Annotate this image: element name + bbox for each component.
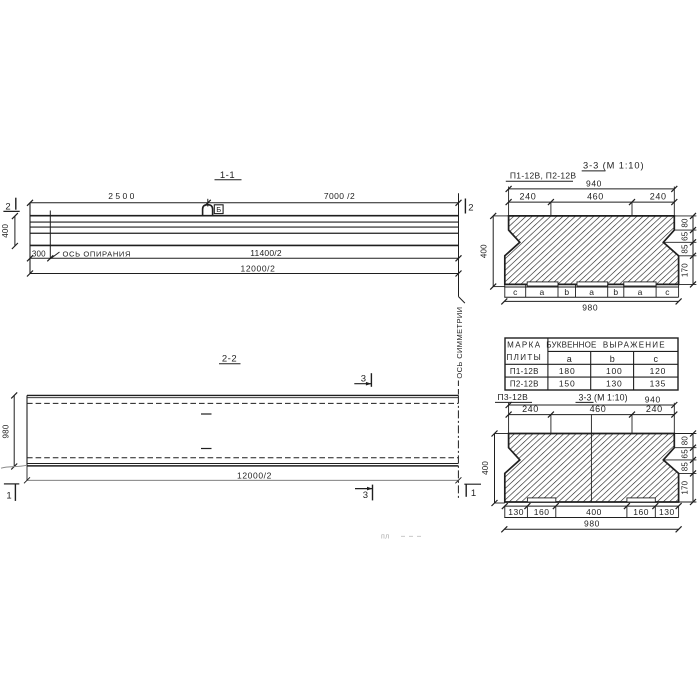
svg-text:12000/2: 12000/2 [241,264,276,274]
svg-text:150: 150 [559,379,576,389]
svg-text:а: а [540,287,545,297]
svg-text:b: b [613,287,618,297]
svg-text:1: 1 [6,491,11,502]
svg-text:ВЫРАЖЕНИЕ: ВЫРАЖЕНИЕ [603,341,666,350]
svg-text:130: 130 [508,507,524,517]
svg-text:а: а [589,287,594,297]
svg-text:170: 170 [680,480,689,494]
svg-text:7000 /2: 7000 /2 [324,191,355,201]
svg-text:МАРКА: МАРКА [507,340,541,349]
svg-text:b: b [564,287,569,297]
svg-text:2: 2 [5,201,10,212]
svg-text:П1-12В: П1-12В [510,367,539,376]
svg-text:1: 1 [471,488,476,499]
svg-text:пл: пл [381,534,389,541]
svg-text:240: 240 [646,404,663,414]
svg-text:300: 300 [32,250,46,259]
svg-text:3: 3 [363,490,368,501]
svg-text:170: 170 [680,263,689,277]
svg-text:400: 400 [481,461,490,475]
svg-text:400: 400 [586,507,602,517]
svg-text:180: 180 [559,366,576,376]
svg-text:980: 980 [584,519,600,529]
svg-text:940: 940 [586,179,602,189]
svg-text:3-3 (М 1:10): 3-3 (М 1:10) [583,161,644,171]
svg-text:980: 980 [582,302,598,312]
svg-text:3: 3 [361,374,366,385]
svg-text:2-2: 2-2 [222,354,237,365]
svg-text:3-3 (М 1:10): 3-3 (М 1:10) [579,392,628,402]
svg-text:100: 100 [606,366,623,376]
svg-text:П3-12В: П3-12В [498,392,529,402]
svg-text:460: 460 [587,191,604,201]
svg-text:Б: Б [216,205,221,214]
svg-text:160: 160 [633,507,649,517]
svg-text:с: с [513,287,518,297]
svg-text:П1-12В, П2-12В: П1-12В, П2-12В [510,171,577,181]
svg-text:135: 135 [650,379,667,389]
svg-text:ОСЬ ОПИРАНИЯ: ОСЬ ОПИРАНИЯ [63,249,132,258]
svg-text:240: 240 [650,191,667,201]
svg-text:с: с [654,354,659,364]
svg-text:85: 85 [680,244,689,254]
svg-text:11400/2: 11400/2 [250,248,282,258]
svg-text:П2-12В: П2-12В [510,380,539,389]
svg-text:а: а [638,287,643,297]
svg-text:ПЛИТЫ: ПЛИТЫ [506,353,542,362]
svg-text:130: 130 [659,507,675,517]
svg-text:а: а [567,354,572,364]
svg-text:130: 130 [606,379,623,389]
svg-text:БУКВЕННОЕ: БУКВЕННОЕ [546,341,596,350]
svg-text:ОСЬ СИММЕТРИИ: ОСЬ СИММЕТРИИ [455,307,464,379]
svg-text:85: 85 [680,462,689,472]
svg-text:b: b [610,354,615,364]
svg-text:160: 160 [534,507,550,517]
svg-text:940: 940 [645,395,661,405]
svg-text:80: 80 [680,218,689,228]
svg-text:980: 980 [2,424,11,438]
svg-text:240: 240 [519,191,536,201]
svg-text:400: 400 [1,223,10,237]
svg-text:2500: 2500 [108,191,137,201]
svg-text:65: 65 [680,449,689,459]
svg-text:1-1: 1-1 [220,170,235,181]
svg-text:240: 240 [522,404,539,414]
svg-text:80: 80 [680,436,689,446]
svg-text:400: 400 [480,244,489,258]
svg-text:120: 120 [650,366,667,376]
svg-text:с: с [665,287,670,297]
svg-text:460: 460 [590,404,607,414]
svg-text:12000/2: 12000/2 [237,471,272,481]
svg-text:2: 2 [468,203,473,214]
svg-text:65: 65 [680,231,689,241]
